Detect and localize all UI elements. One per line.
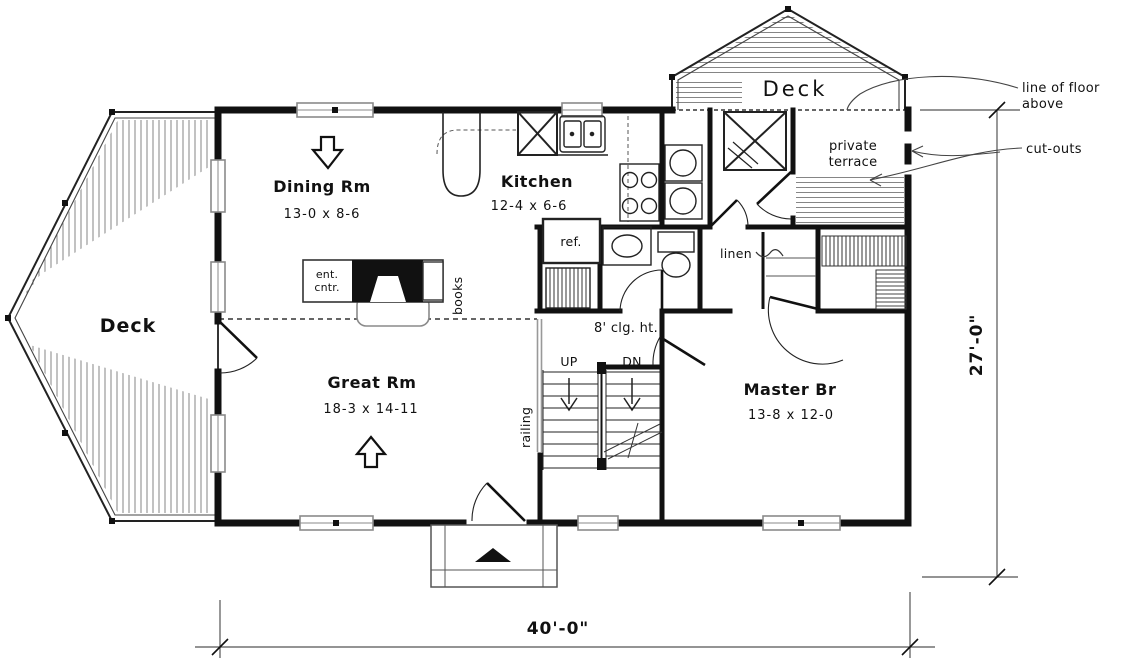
master-dims: 13-8 x 12-0 xyxy=(748,408,834,423)
window-bottom-great xyxy=(300,516,373,530)
entry-stoop xyxy=(431,525,557,587)
annotations: line of floor above cut-outs xyxy=(847,77,1100,186)
front-door xyxy=(472,483,525,521)
left-deck-hatch-upper xyxy=(22,120,212,300)
books-label: books xyxy=(450,277,465,315)
skylight-icon xyxy=(518,112,557,155)
doors xyxy=(219,172,843,521)
entertainment-center: ent. cntr. books xyxy=(303,260,465,326)
dining-dims: 13-0 x 8-6 xyxy=(284,207,361,222)
top-deck-hatch-side xyxy=(676,78,742,104)
dining-name: Dining Rm xyxy=(273,177,371,196)
top-deck-hatch xyxy=(676,14,900,75)
master-name: Master Br xyxy=(744,380,837,399)
bookshelf-box xyxy=(423,262,443,300)
cutouts-label: cut-outs xyxy=(1026,142,1082,157)
shower-icon xyxy=(724,112,786,170)
window-top-kitchen xyxy=(562,103,602,117)
up-label: UP xyxy=(560,354,577,369)
linen-label: linen xyxy=(720,246,752,261)
floor-above-label-2: above xyxy=(1022,97,1063,112)
up-arrow-icon xyxy=(561,378,577,410)
ref-label: ref. xyxy=(560,234,581,249)
height-dimension-label: 27'-0" xyxy=(967,314,987,377)
window-left-1 xyxy=(211,160,225,212)
washer-dryer-icon xyxy=(665,145,702,219)
great-room-name: Great Rm xyxy=(328,373,417,392)
linen-shelves xyxy=(766,258,816,276)
window-top-dining xyxy=(297,103,373,117)
range-icon xyxy=(620,164,659,221)
dn-arrow-icon xyxy=(624,378,640,410)
floor-above-label-1: line of floor xyxy=(1022,81,1100,96)
left-deck-hatch-lower xyxy=(30,345,212,513)
master-bedroom-door xyxy=(768,297,843,364)
closet-shelf-hatch xyxy=(876,270,906,309)
vanity-sink-icon xyxy=(603,227,651,265)
bath-door xyxy=(620,270,662,311)
top-deck-label: Deck xyxy=(763,77,828,101)
floor-plan-canvas: Deck Deck private terrace xyxy=(0,0,1135,664)
ceiling-height-label: 8' clg. ht. xyxy=(594,321,658,336)
windows xyxy=(211,103,840,530)
kitchen-name: Kitchen xyxy=(501,172,573,191)
stair-treads-down xyxy=(606,370,660,470)
left-deck-label: Deck xyxy=(100,315,157,337)
kitchen-dims: 12-4 x 6-6 xyxy=(491,199,568,214)
stair-treads-up xyxy=(543,370,598,470)
window-left-3 xyxy=(211,415,225,472)
floor-above-leader xyxy=(847,77,1018,110)
great-room-dims: 18-3 x 14-11 xyxy=(323,402,418,417)
dining-flow-arrow-icon xyxy=(313,137,342,168)
terrace-label-2: terrace xyxy=(829,155,878,170)
stair-break-lines xyxy=(604,423,662,459)
window-bottom-master xyxy=(763,516,840,530)
width-dimension-label: 40'-0" xyxy=(527,619,590,639)
master-closet xyxy=(822,236,906,309)
linen-leader-squiggle xyxy=(756,250,783,257)
pantry-shelves xyxy=(546,268,590,308)
dn-label: DN xyxy=(622,354,642,369)
window-left-2 xyxy=(211,262,225,312)
window-bottom-foyer xyxy=(578,516,618,530)
railing-label: railing xyxy=(518,407,533,448)
cabinet-dashed-line xyxy=(437,130,516,154)
stairs: UP DN railing 8' clg. ht. xyxy=(518,319,662,470)
counter-peninsula xyxy=(443,112,480,196)
private-terrace: private terrace xyxy=(796,139,904,226)
shower-room-door xyxy=(710,200,748,227)
top-deck: Deck xyxy=(669,6,908,110)
left-deck: Deck xyxy=(5,109,218,524)
closet-hanging-hatch xyxy=(822,236,906,266)
double-sink-icon xyxy=(560,116,605,152)
ent-label-1: ent. xyxy=(316,268,338,281)
terrace-label-1: private xyxy=(829,139,877,154)
toilet-icon xyxy=(658,232,694,277)
terrace-hatch xyxy=(796,176,904,226)
stair-railing-line xyxy=(538,319,542,452)
interior-walls xyxy=(537,110,908,523)
terrace-door xyxy=(757,172,791,219)
great-room-flow-arrow-icon xyxy=(357,437,385,467)
linen-closet: linen xyxy=(720,246,783,261)
ent-label-2: cntr. xyxy=(314,281,339,294)
deck-door xyxy=(219,321,257,373)
